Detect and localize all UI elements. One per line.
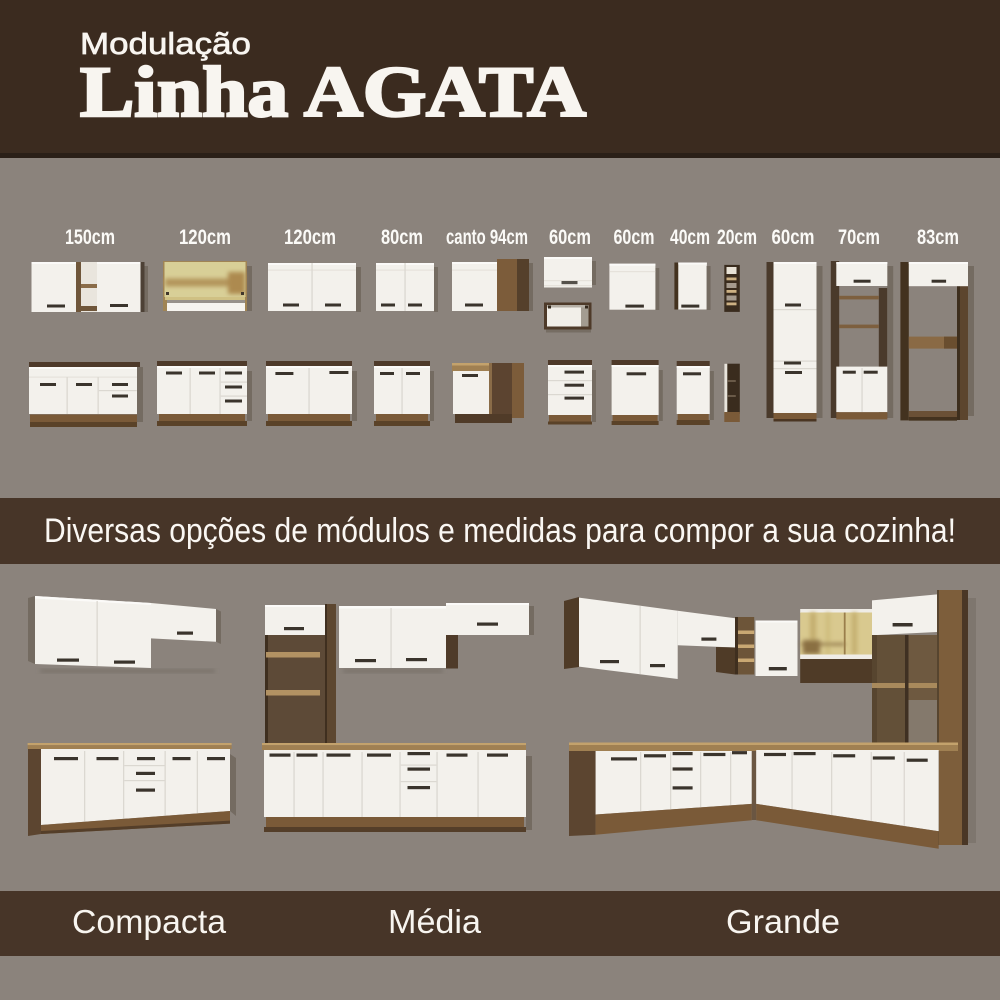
svg-text:Média: Média — [388, 903, 482, 940]
svg-text:70cm: 70cm — [838, 226, 880, 249]
svg-text:80cm: 80cm — [381, 226, 423, 249]
svg-text:60cm: 60cm — [549, 226, 591, 249]
svg-text:60cm: 60cm — [772, 226, 815, 249]
svg-text:Compacta: Compacta — [72, 903, 227, 940]
svg-text:150cm: 150cm — [65, 226, 115, 249]
svg-text:Grande: Grande — [726, 903, 840, 940]
svg-text:60cm: 60cm — [614, 226, 655, 249]
svg-text:20cm: 20cm — [717, 226, 757, 249]
svg-text:Diversas opções de módulos e m: Diversas opções de módulos e medidas par… — [44, 512, 956, 550]
svg-text:40cm: 40cm — [670, 226, 710, 249]
svg-text:120cm: 120cm — [284, 226, 336, 249]
svg-text:83cm: 83cm — [917, 226, 959, 249]
svg-text:canto 94cm: canto 94cm — [446, 226, 528, 249]
svg-text:Linha AGATA: Linha AGATA — [80, 52, 586, 132]
svg-text:120cm: 120cm — [179, 226, 231, 249]
